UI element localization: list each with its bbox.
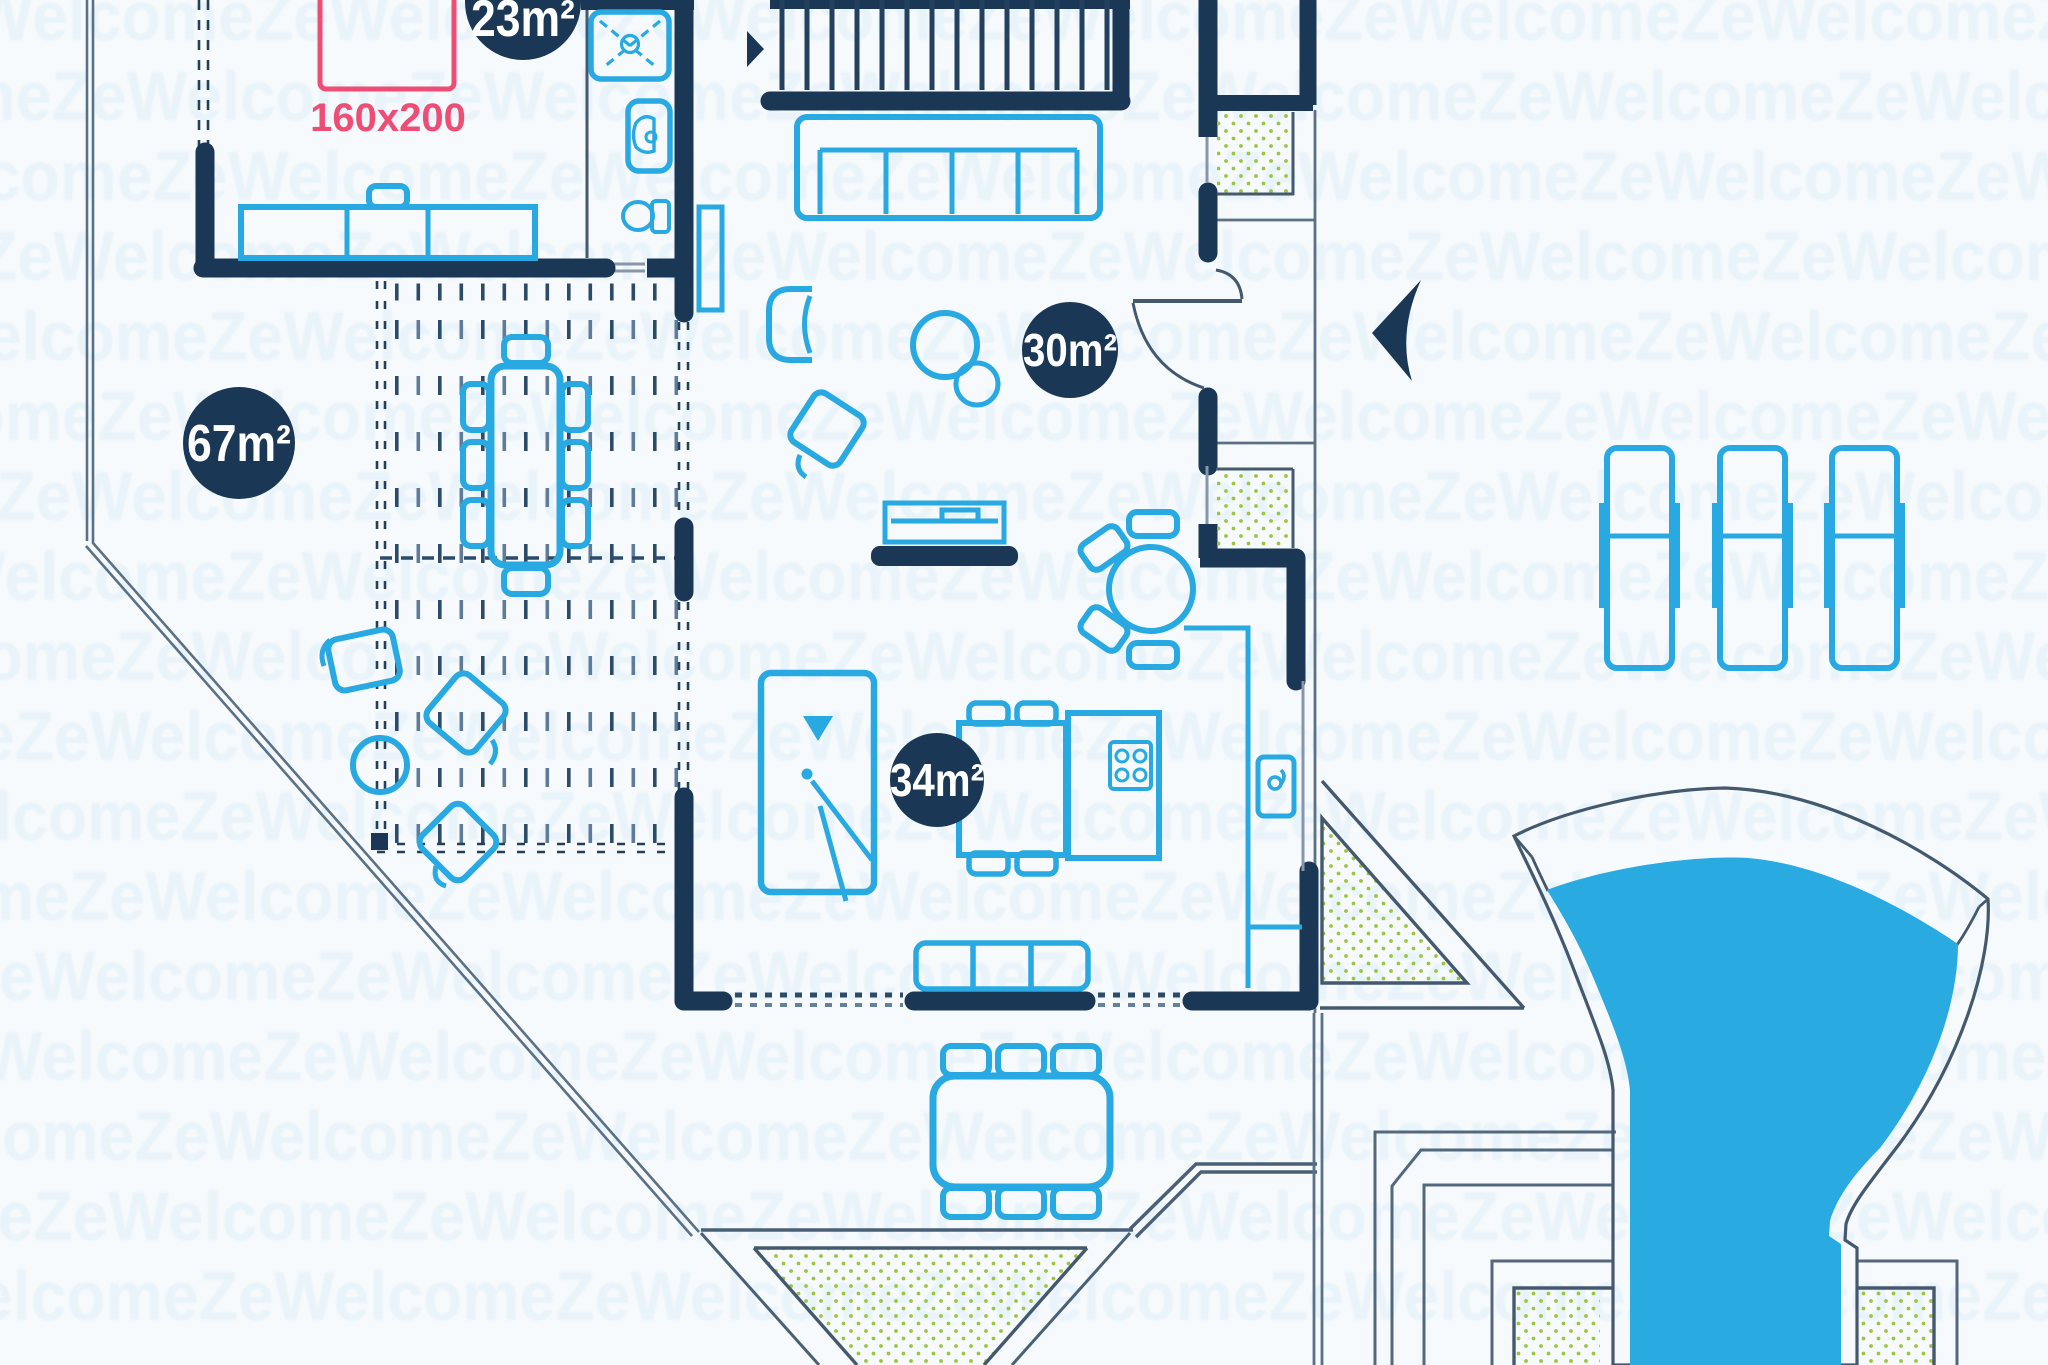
- svg-text:WelcomeZeWelcomeZeWelcomeZeWel: WelcomeZeWelcomeZeWelcomeZeWelcomeZeWelc…: [0, 698, 2048, 776]
- svg-text:30m²: 30m²: [1023, 324, 1117, 376]
- svg-text:WelcomeZeWelcomeZeWelcomeZeWel: WelcomeZeWelcomeZeWelcomeZeWelcomeZeWelc…: [0, 378, 2048, 456]
- svg-text:67m²: 67m²: [187, 415, 291, 473]
- svg-text:160x200: 160x200: [310, 96, 466, 140]
- svg-text:34m²: 34m²: [890, 754, 984, 806]
- svg-text:WelcomeZeWelcomeZeWelcomeZeWel: WelcomeZeWelcomeZeWelcomeZeWelcomeZeWelc…: [0, 458, 2048, 536]
- svg-text:WelcomeZeWelcomeZeWelcomeZeWel: WelcomeZeWelcomeZeWelcomeZeWelcomeZeWelc…: [0, 618, 2048, 696]
- svg-text:23m²: 23m²: [471, 0, 575, 48]
- svg-text:WelcomeZeWelcomeZeWelcomeZeWel: WelcomeZeWelcomeZeWelcomeZeWelcomeZeWelc…: [0, 538, 2048, 616]
